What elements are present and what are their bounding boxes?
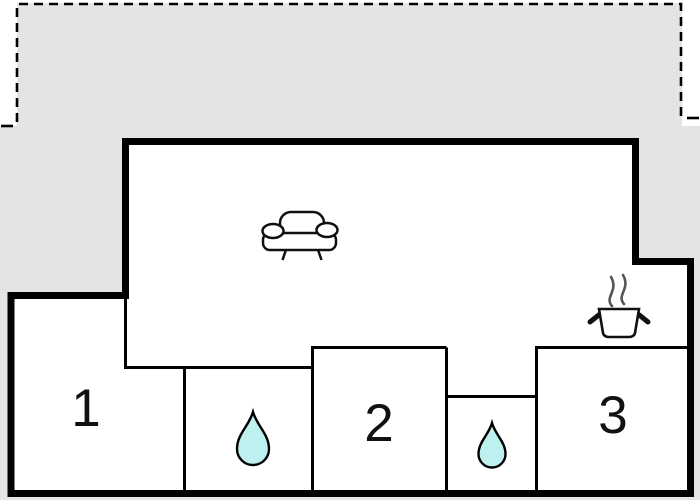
terrace-area-upper <box>17 3 682 126</box>
pot-body <box>599 309 639 337</box>
floor-plan: 1 2 3 <box>0 0 700 500</box>
room-1-label: 1 <box>51 378 121 438</box>
room-2-label: 2 <box>344 393 414 453</box>
room-3-label: 3 <box>578 385 648 445</box>
